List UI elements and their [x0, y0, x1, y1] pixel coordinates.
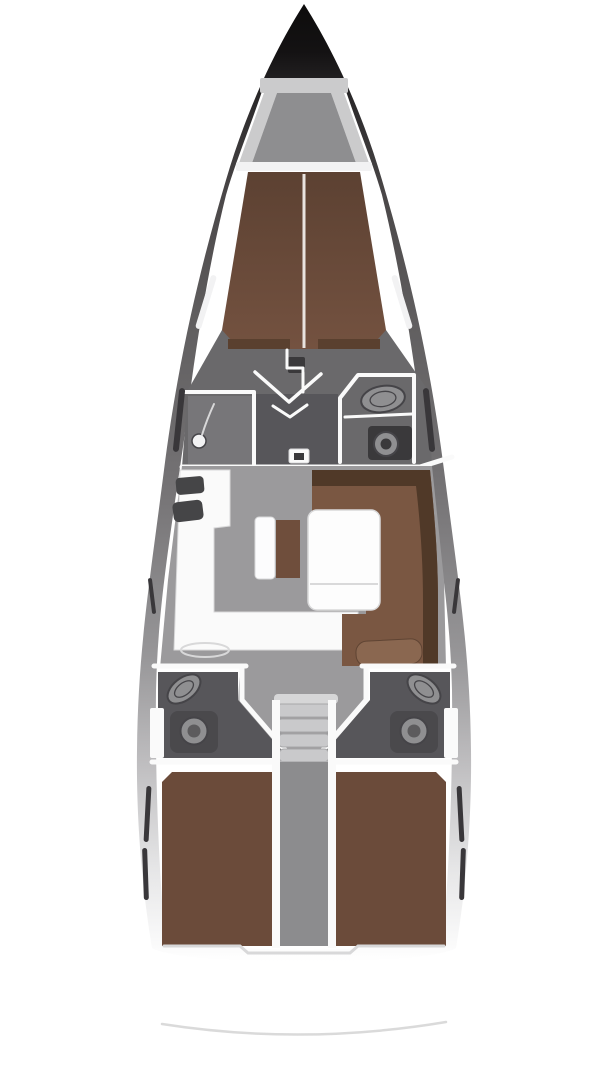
yacht-floor-plan [0, 0, 608, 1080]
v-berth-shelf-starboard [318, 339, 380, 349]
transom-line [162, 1022, 446, 1035]
shower-head [192, 434, 206, 448]
aft-bed-starboard [336, 772, 446, 946]
anchor-locker-bulkhead [260, 78, 348, 93]
v-berth-split-line [303, 174, 306, 348]
yacht-floor-plan-page [0, 0, 608, 1080]
companionway [272, 694, 338, 948]
step-1 [276, 704, 332, 717]
stern [162, 1022, 446, 1035]
galley-sink-2 [172, 499, 204, 523]
aft-head-port-toilet-lid [188, 725, 201, 738]
engine-wall-starboard [328, 700, 336, 948]
fore-head-toilet-lid [381, 439, 392, 450]
step-3 [278, 734, 330, 747]
engine-wall-port [272, 700, 280, 948]
bench-cushion [255, 517, 275, 579]
v-berth-shelf-port [228, 339, 290, 349]
aft-head-port-locker [150, 708, 164, 758]
step-4 [279, 749, 329, 762]
center-bench [276, 520, 300, 578]
anchor-locker [236, 78, 372, 171]
fore-head-door-handle [294, 453, 304, 460]
fore-cabin-bulkhead [236, 162, 372, 171]
aft-head-starboard-toilet-lid [408, 725, 421, 738]
shower-floor [188, 396, 252, 464]
aft-bed-port [162, 772, 272, 946]
salon-table [308, 510, 380, 610]
galley-sink-1 [175, 476, 204, 495]
engine-compartment [280, 762, 328, 946]
step-2 [277, 719, 331, 732]
settee-bolster [355, 638, 422, 666]
aft-head-starboard-locker [444, 708, 458, 758]
